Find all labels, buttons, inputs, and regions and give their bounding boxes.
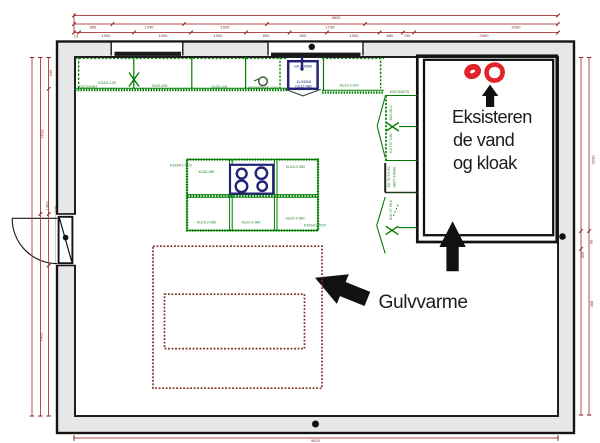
svg-text:XU20-100: XU20-100 [152, 84, 168, 88]
svg-text:1000: 1000 [214, 33, 224, 38]
svg-text:2400: 2400 [480, 33, 490, 38]
svg-text:1526: 1526 [221, 25, 231, 30]
svg-text:K1024/1-7070: K1024/1-7070 [304, 224, 326, 228]
svg-text:HK07 2-8000: HK07 2-8000 [393, 167, 397, 188]
svg-text:Gulvvarme: Gulvvarme [379, 292, 468, 313]
svg-text:368: 368 [589, 300, 594, 307]
svg-text:1736: 1736 [326, 25, 336, 30]
svg-text:700: 700 [404, 33, 411, 38]
svg-text:949: 949 [53, 205, 58, 212]
svg-text:K0 T37 0-60: K0 T37 0-60 [389, 133, 393, 152]
svg-text:de vand: de vand [453, 130, 514, 150]
svg-text:KU10-2-080: KU10-2-080 [286, 165, 305, 169]
svg-text:88006BPKKE-CXV: 88006BPKKE-CXV [248, 86, 278, 90]
svg-text:KU10-2-080: KU10-2-080 [286, 217, 305, 221]
svg-text:90: 90 [589, 239, 594, 244]
svg-text:2610: 2610 [39, 129, 44, 139]
svg-text:KU10-2-080: KU10-2-080 [242, 221, 261, 225]
svg-text:9620: 9620 [311, 438, 321, 443]
svg-text:1000: 1000 [102, 33, 112, 38]
svg-text:K1024/1-7272: K1024/1-7272 [170, 164, 192, 168]
svg-text:600: 600 [300, 33, 307, 38]
svg-text:9620: 9620 [332, 15, 342, 20]
svg-text:KU1 08-0: KU1 08-0 [389, 106, 393, 121]
svg-text:685: 685 [90, 25, 97, 30]
svg-text:KU10-2-080: KU10-2-080 [197, 221, 216, 225]
svg-text:KU 76-5 0-60: KU 76-5 0-60 [387, 167, 391, 188]
svg-text:K0E23/0075: K0E23/0075 [390, 90, 409, 94]
svg-text:KU20-100: KU20-100 [212, 85, 228, 89]
svg-text:11-93008: 11-93008 [296, 80, 311, 84]
svg-text:KU13-2-100: KU13-2-100 [340, 84, 359, 88]
svg-text:KU1 07 05-0: KU1 07 05-0 [389, 200, 393, 220]
svg-text:KU20-080: KU20-080 [199, 170, 215, 174]
svg-text:1363: 1363 [44, 201, 49, 211]
svg-text:936: 936 [48, 69, 53, 76]
svg-text:600: 600 [263, 33, 270, 38]
svg-text:GK-2005BI: GK-2005BI [294, 64, 312, 68]
svg-text:K6232/0067: K6232/0067 [79, 85, 98, 89]
svg-text:425: 425 [580, 251, 585, 258]
svg-text:KGA/1-100: KGA/1-100 [98, 81, 115, 85]
svg-text:2430: 2430 [512, 25, 522, 30]
svg-text:1240: 1240 [145, 25, 155, 30]
svg-text:KU12-080: KU12-080 [295, 84, 311, 88]
svg-text:1000: 1000 [350, 33, 360, 38]
svg-text:2461: 2461 [39, 332, 44, 342]
svg-text:Eksisteren: Eksisteren [452, 107, 532, 127]
svg-text:13: 13 [74, 34, 79, 39]
svg-text:3230: 3230 [591, 155, 596, 165]
svg-text:1000: 1000 [159, 33, 169, 38]
svg-text:og kloak: og kloak [453, 153, 518, 173]
svg-text:680: 680 [387, 33, 394, 38]
